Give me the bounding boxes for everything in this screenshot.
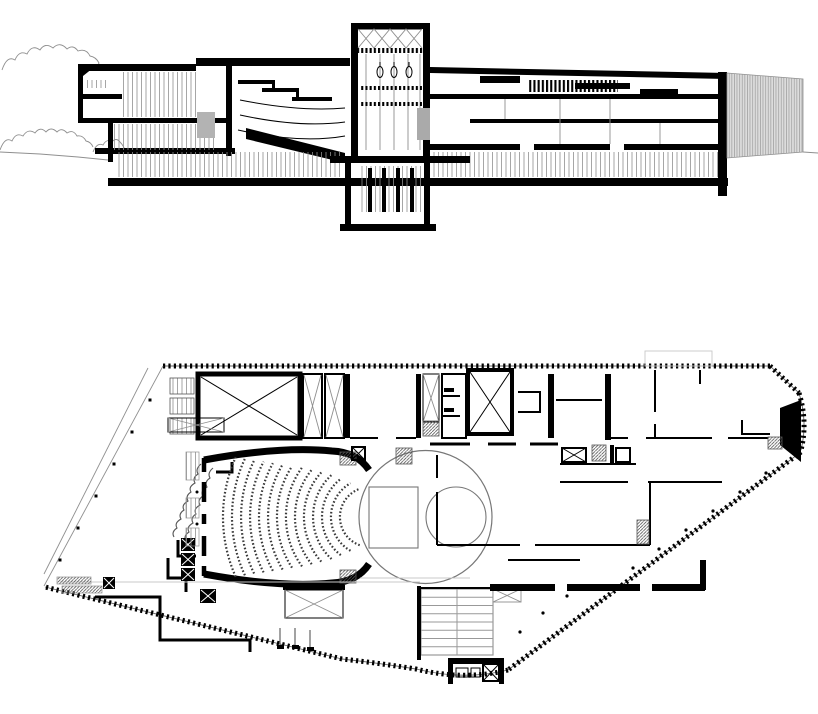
stair-shafts [303,374,350,438]
elevator-shaft-large [468,370,512,434]
south-east-rooms [490,560,706,591]
north-mid-rooms [518,374,611,440]
shaft-with-stair [423,374,439,436]
plan-south-zone [57,560,706,684]
section-basement [108,152,728,231]
adjacent-elevation-block [727,73,803,158]
foyer-columns [518,471,767,633]
corridor-walls [396,444,558,464]
stage-platform-circle [426,487,486,547]
east-room-walls [437,455,722,545]
architectural-drawing-canvas [0,0,818,714]
stage-side-stair-south [340,570,356,583]
storage-room-x [283,585,345,618]
west-stair-strips [186,452,199,546]
south-west-rooms [57,577,345,652]
east-service-cells [560,445,636,464]
fly-tower [351,23,430,163]
section-right-block [430,72,727,196]
grand-stair [421,589,493,655]
service-cells [442,374,466,438]
section-left-block [78,64,235,162]
roof-truss [358,29,422,48]
plant-room [350,374,421,438]
plan-north-rooms [170,351,801,462]
drawing-svg [0,0,818,714]
stage-revolve [359,451,492,584]
floor-plan [44,351,804,684]
stage-platform-rect [369,487,418,548]
auditorium-plan [168,418,369,584]
auditorium-section [238,80,345,163]
door-posts [277,628,314,651]
stage-house-shaft [198,374,300,438]
longitudinal-section [0,23,818,231]
edge-posts [59,399,152,562]
north-east-corner [742,400,801,462]
seat-rows [223,457,360,577]
stage-lights [377,62,412,78]
